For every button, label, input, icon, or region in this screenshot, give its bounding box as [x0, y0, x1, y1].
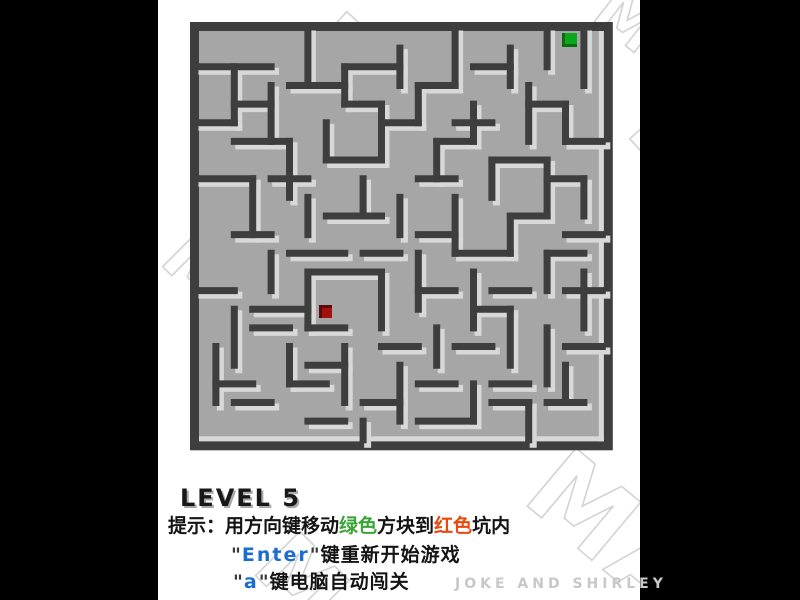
maze-board[interactable] — [0, 0, 800, 600]
credits: JOKE AND SHIRLEY — [455, 576, 667, 592]
quote-mark: " — [233, 571, 244, 593]
hint-mid: 方块到 — [377, 515, 434, 537]
hint-suffix: 坑内 — [472, 515, 510, 537]
a-key-label: a — [244, 571, 259, 593]
enter-key-hint: "Enter"键重新开始游戏 — [231, 540, 461, 567]
level-title: LEVEL 5 — [180, 484, 301, 512]
hint-prefix: 提示：用方向键移动 — [168, 515, 339, 537]
auto-key-hint: "a"键电脑自动闯关 — [233, 567, 410, 594]
enter-hint-text: 键重新开始游戏 — [321, 544, 461, 566]
auto-hint-text: 键电脑自动闯关 — [270, 571, 410, 593]
quote-mark: " — [310, 544, 321, 566]
quote-mark: " — [231, 544, 242, 566]
hint-red-word: 红色 — [434, 515, 472, 537]
enter-key-label: Enter — [242, 544, 310, 566]
game-screen: MAZEMAZEMAZEMAZEMAZEMAZEMAZEMAZE LEVEL 5… — [0, 0, 800, 600]
hint-green-word: 绿色 — [339, 515, 377, 537]
hint-line: 提示：用方向键移动绿色方块到红色坑内 — [168, 511, 510, 538]
quote-mark: " — [259, 571, 270, 593]
green-block[interactable] — [565, 33, 577, 44]
maze-bevel-bottom — [199, 436, 604, 441]
red-goal[interactable] — [322, 308, 332, 318]
